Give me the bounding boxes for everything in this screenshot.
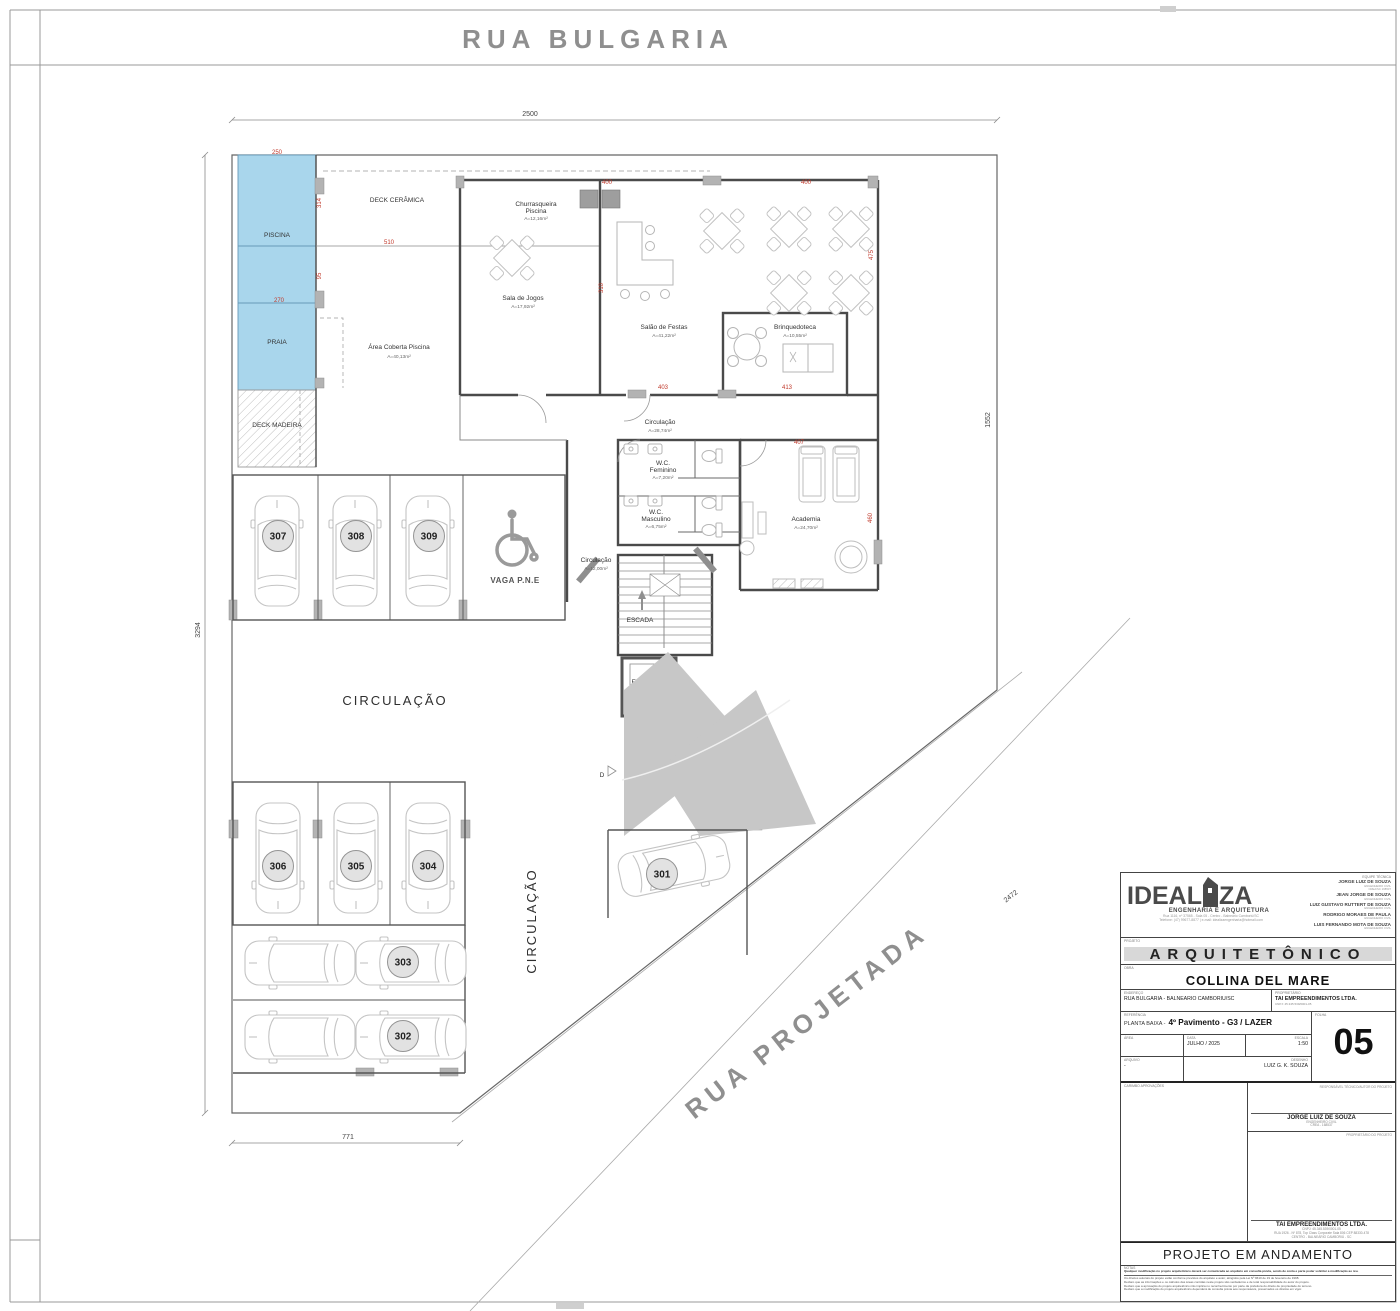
room-area-coberta-area: A=40,13m²: [387, 354, 411, 360]
wheelchair-icon: [497, 510, 537, 566]
red-dim: 250: [272, 150, 283, 156]
notes-area: NOTAS Qualquer modificação no projeto ar…: [1121, 1266, 1395, 1299]
endereco-label: ENDEREÇO: [1124, 992, 1268, 995]
carimbo-label: CARIMBO APROVAÇÕES: [1124, 1085, 1244, 1088]
bar-counter: [617, 222, 673, 301]
logo-address-2: Telefone: (47) 99677-8877 | e-mail: idea…: [1145, 918, 1277, 922]
room-deck-ceramica: DECK CERÂMICA: [370, 195, 425, 204]
data-value: JULHO / 2025: [1187, 1041, 1242, 1047]
spot-307: 307: [270, 532, 287, 543]
folha-cell: FOLHA 05: [1311, 1012, 1395, 1081]
room-wc-masc-area: A=6,75m²: [646, 524, 667, 530]
red-dim: 475: [869, 249, 875, 260]
folha-label: FOLHA: [1315, 1014, 1392, 1017]
logo-word-left: IDEAL: [1127, 886, 1202, 907]
red-dim: 95: [317, 272, 323, 279]
referencia-prefix: PLANTA BAIXA -: [1124, 1021, 1165, 1027]
room-academia: Academia: [792, 516, 821, 523]
projeto-value: ARQUITETÔNICO: [1124, 947, 1392, 961]
team-member-role: ENGENHEIRO CIVIL: [1279, 898, 1391, 901]
room-piscina: PISCINA: [264, 232, 291, 239]
responsavel-signature: JORGE LUIZ DE SOUZA ENGENHEIRO CIVIL CRE…: [1251, 1113, 1392, 1129]
room-salao-festas: Salão de Festas: [641, 324, 689, 331]
escala-cell: ESCALA 1:50: [1245, 1035, 1311, 1056]
dashed-cover-line: [320, 318, 343, 388]
dim-diagonal: 2472: [1003, 889, 1020, 904]
room-churrasqueira-area: A=12,16m²: [524, 216, 548, 222]
door-leaves: [576, 547, 717, 584]
titleblock-header: IDEAL ZA ENGENHARIA E ARQUITETURA Rua 11…: [1121, 873, 1395, 938]
area-label: ÁREA: [1124, 1037, 1180, 1040]
red-dim: 400: [801, 180, 812, 186]
sheet-mark-bottom: [556, 1303, 584, 1309]
nota-line: Declaro que a modificação do projeto arq…: [1124, 1288, 1392, 1292]
responsavel-reg: CREA - 168537: [1251, 1124, 1392, 1128]
room-wc-masc-l1: W.C.: [649, 509, 663, 516]
room-academia-area: A=24,70m²: [794, 525, 818, 531]
dim-top: 2500: [522, 111, 538, 118]
address-owner-row: ENDEREÇO RUA BULGARIA - BALNEARIO CAMBOR…: [1121, 990, 1395, 1012]
arquivo-desenho-row: ARQUIVO - DESENHO LUIZ G. K. SOUZA: [1121, 1057, 1311, 1081]
red-dim: 510: [384, 240, 395, 246]
red-dim: 403: [658, 385, 669, 391]
spot-305: 305: [348, 862, 365, 873]
room-praia: PRAIA: [267, 339, 287, 346]
team-member-reg: CREA/SC 168537: [1279, 888, 1391, 891]
team-member-role: ENGENHEIRO CIVIL: [1279, 917, 1391, 920]
corridor-edge: [460, 395, 567, 440]
red-dim: 314: [317, 197, 323, 208]
ramp-marker: D: [600, 772, 605, 779]
street-name-top: RUA BULGARIA: [462, 24, 734, 54]
responsavel-cell: RESPONSÁVEL TÉCNICO/AUTOR DO PROJETO JOR…: [1247, 1083, 1395, 1241]
street-edges: [452, 618, 1130, 1311]
room-churrasqueira-l1: Churrasqueira: [515, 201, 557, 208]
sheet-number: 05: [1312, 1024, 1395, 1060]
referencia-cell: REFERÊNCIA PLANTA BAIXA - 4º Pavimento -…: [1121, 1012, 1311, 1035]
obra-value: COLLINA DEL MARE: [1121, 973, 1395, 988]
arquivo-label: ARQUIVO: [1124, 1059, 1180, 1062]
room-sala-jogos: Sala de Jogos: [502, 295, 544, 302]
projeto-row: PROJETO ARQUITETÔNICO: [1121, 938, 1395, 965]
dono-signature: TAI EMPREENDIMENTOS LTDA. CNPJ: 45.345.5…: [1251, 1220, 1392, 1240]
dim-left: 3294: [195, 622, 202, 638]
projeto-label: PROJETO: [1124, 940, 1140, 943]
technical-team: EQUIPE TÉCNICA JORGE LUIZ DE SOUZA ENGEN…: [1279, 873, 1395, 937]
spot-306: 306: [270, 862, 287, 873]
responsavel-label: RESPONSÁVEL TÉCNICO/AUTOR DO PROJETO: [1251, 1085, 1392, 1089]
spot-303: 303: [395, 958, 412, 969]
arquivo-cell: ARQUIVO -: [1121, 1057, 1183, 1081]
area-data-escala-row: ÁREA DATA JULHO / 2025 ESCALA 1:50: [1121, 1035, 1311, 1057]
spot-308: 308: [348, 532, 365, 543]
lane-circulacao-label: CIRCULAÇÃO: [524, 868, 539, 973]
room-escada: ESCADA: [627, 617, 654, 624]
sheet-mark-top: [1160, 6, 1176, 12]
proprietario-label: PROPRIETÁRIO: [1275, 992, 1392, 995]
obra-row: OBRA COLLINA DEL MARE: [1121, 965, 1395, 990]
room-wc-masc-l2: Masculino: [641, 516, 671, 523]
room-brinquedoteca-area: A=10,55m²: [783, 333, 807, 339]
desenho-label: DESENHO: [1187, 1059, 1308, 1062]
escala-label: ESCALA: [1249, 1037, 1308, 1040]
garage-circulacao-label: CIRCULAÇÃO: [342, 693, 447, 708]
vaga-pne-label: VAGA P.N.E: [490, 576, 539, 585]
stairs-arrow: [638, 590, 646, 610]
spot-309: 309: [421, 532, 438, 543]
desenho-cell: DESENHO LUIZ G. K. SOUZA: [1183, 1057, 1311, 1081]
stairs: [618, 555, 712, 648]
red-dim: 270: [274, 298, 285, 304]
logo-tower-icon: [1203, 877, 1218, 907]
spot-304: 304: [420, 862, 437, 873]
red-dim: 400: [602, 180, 613, 186]
wc-fixtures: [624, 444, 722, 537]
escala-value: 1:50: [1249, 1041, 1308, 1047]
room-circulacao: Circulação: [645, 419, 676, 426]
dono-addr2: CENTRO - BALNEÁRIO CAMBORIÚ - SC: [1251, 1236, 1392, 1240]
data-cell: DATA JULHO / 2025: [1183, 1035, 1245, 1056]
status-banner: PROJETO EM ANDAMENTO: [1121, 1242, 1395, 1266]
brinquedoteca-furniture: [728, 328, 834, 373]
red-dim: 407: [794, 440, 805, 446]
desenho-value: LUIZ G. K. SOUZA: [1187, 1063, 1308, 1069]
room-brinquedoteca: Brinquedoteca: [774, 324, 816, 331]
room-circulacao2-area: A=12,00m²: [584, 566, 608, 572]
ramp-marker-arrow: [608, 766, 616, 776]
spot-301: 301: [654, 870, 671, 881]
endereco-cell: ENDEREÇO RUA BULGARIA - BALNEARIO CAMBOR…: [1121, 990, 1271, 1011]
street-name-diagonal: RUA PROJETADA: [679, 917, 933, 1125]
room-circulacao2: Circulação: [581, 557, 612, 564]
room-area-coberta: Área Coberta Piscina: [368, 342, 430, 351]
ramp: [622, 652, 816, 836]
team-member-role: ENGENHEIRO CIVIL: [1279, 927, 1391, 930]
team-member-role: ENGENHEIRO CIVIL: [1279, 907, 1391, 910]
proprietario-cell: PROPRIETÁRIO TAI EMPREENDIMENTOS LTDA. C…: [1271, 990, 1395, 1011]
title-block: IDEAL ZA ENGENHARIA E ARQUITETURA Rua 11…: [1120, 872, 1396, 1302]
idealiza-logo: IDEAL ZA ENGENHARIA E ARQUITETURA Rua 11…: [1121, 873, 1279, 937]
red-dim: 413: [782, 385, 793, 391]
room-wc-fem-l1: W.C.: [656, 460, 670, 467]
proprietario-cnpj: CNPJ: 45.345.539/0001-05: [1275, 1002, 1392, 1006]
referencia-label: REFERÊNCIA: [1124, 1014, 1308, 1017]
dim-right: 1552: [985, 412, 992, 428]
room-wc-fem-l2: Feminino: [650, 467, 677, 474]
spot-302: 302: [395, 1032, 412, 1043]
drawing-sheet: RUA BULGARIA RUA PROJETADA 2500 3294 155…: [0, 0, 1400, 1311]
room-circulacao-area: A=28,74m²: [648, 428, 672, 434]
referencia-value: 4º Pavimento - G3 / LAZER: [1168, 1018, 1272, 1027]
door-arcs: [518, 395, 766, 466]
reference-rows: REFERÊNCIA PLANTA BAIXA - 4º Pavimento -…: [1121, 1012, 1395, 1083]
room-churrasqueira-l2: Piscina: [526, 208, 547, 215]
room-sala-jogos-area: A=17,92m²: [511, 304, 535, 310]
room-wc-fem-area: A=7,20m²: [653, 475, 674, 481]
data-label: DATA: [1187, 1037, 1242, 1040]
signature-area: CARIMBO APROVAÇÕES RESPONSÁVEL TÉCNICO/A…: [1121, 1083, 1395, 1242]
room-deck-madeira: DECK MADEIRA: [252, 422, 302, 429]
red-dim: 460: [868, 512, 874, 523]
area-cell: ÁREA: [1121, 1035, 1183, 1056]
obra-label: OBRA: [1124, 967, 1134, 970]
room-salao-festas-area: A=41,22m²: [652, 333, 676, 339]
carimbo-cell: CARIMBO APROVAÇÕES: [1121, 1083, 1247, 1241]
dim-bottom: 771: [342, 1134, 354, 1141]
red-dim: 310: [599, 282, 605, 293]
arquivo-value: -: [1124, 1063, 1180, 1069]
endereco-value: RUA BULGARIA - BALNEARIO CAMBORIU/SC: [1124, 996, 1268, 1002]
logo-word-right: ZA: [1219, 886, 1252, 907]
pool-area: [238, 155, 316, 467]
